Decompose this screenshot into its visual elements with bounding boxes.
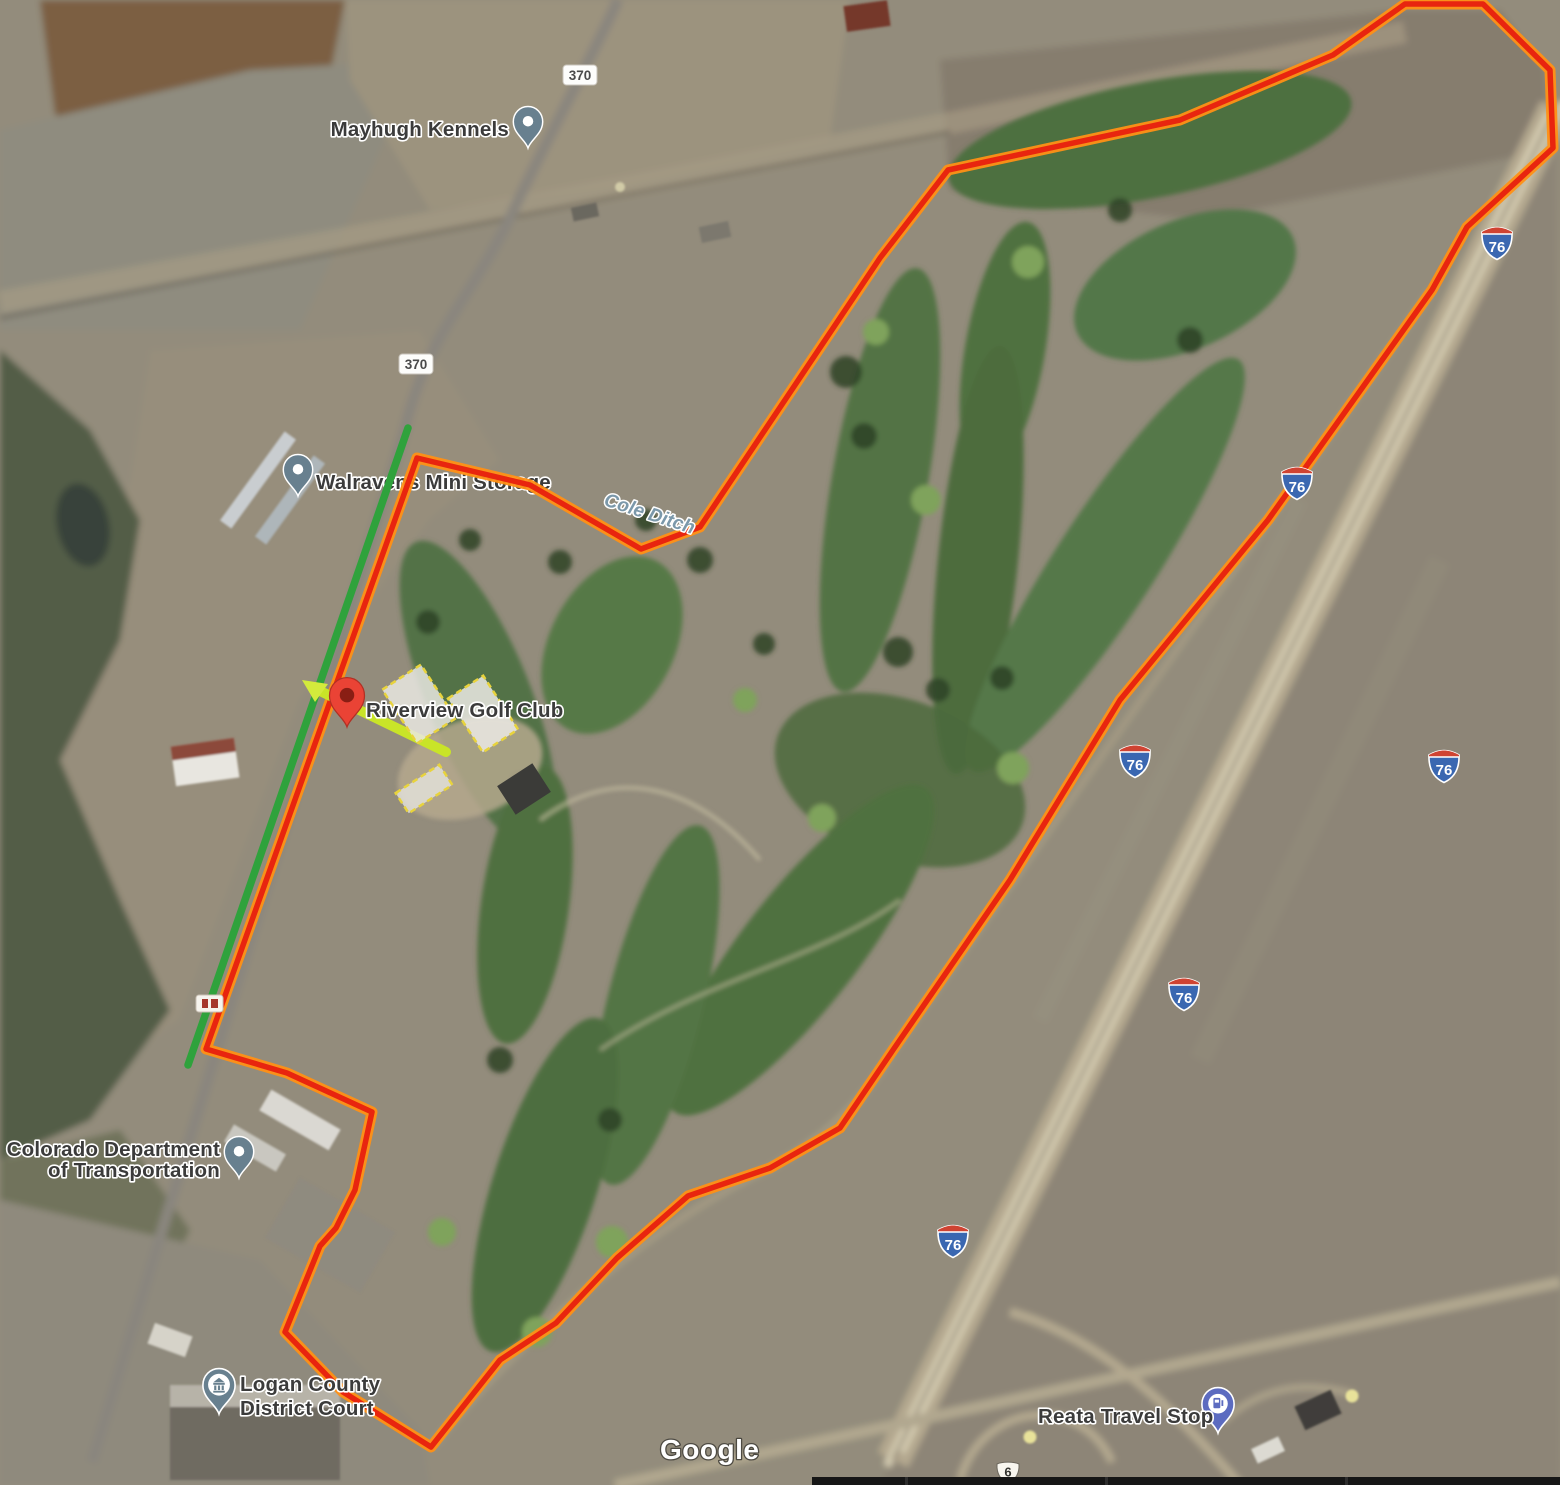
interstate-76-text: 76 (1176, 990, 1193, 1007)
mayhugh-label[interactable]: Mayhugh Kennels (331, 118, 509, 141)
logan-label-line1[interactable]: Logan County (240, 1373, 381, 1396)
route-370-shield-text: 370 (405, 357, 428, 372)
route-370-shield: 370 (399, 354, 433, 374)
cdot-label-line2[interactable]: of Transportation (48, 1159, 220, 1182)
intersection-dot (615, 182, 625, 192)
pin-hole (234, 1146, 245, 1157)
interstate-76-text: 76 (1289, 479, 1306, 496)
logan-label-line2[interactable]: District Court (240, 1397, 374, 1420)
pin-hole (293, 464, 304, 475)
satellite-map-viewport[interactable]: Walravens Mini Storage (0, 0, 1560, 1485)
google-watermark[interactable]: Google (660, 1434, 759, 1465)
riverview-label[interactable]: Riverview Golf Club (366, 699, 563, 722)
intersection-dot (1024, 1431, 1037, 1444)
cdot-label-line1[interactable]: Colorado Department (7, 1138, 220, 1161)
pin-hole (340, 688, 355, 703)
bottom-dark-bar (812, 1477, 1560, 1485)
partial-road-shield-icon (196, 995, 223, 1012)
interstate-76-text: 76 (1436, 762, 1453, 779)
interstate-76-text: 76 (945, 1237, 962, 1254)
pin-hole (523, 116, 534, 127)
intersection-dot (1346, 1390, 1359, 1403)
reata-label[interactable]: Reata Travel Stop (1038, 1405, 1213, 1428)
route-370-shield: 370 (563, 65, 597, 85)
route-370-shield-text: 370 (569, 68, 592, 83)
interstate-76-text: 76 (1127, 757, 1144, 774)
interstate-76-text: 76 (1489, 239, 1506, 256)
